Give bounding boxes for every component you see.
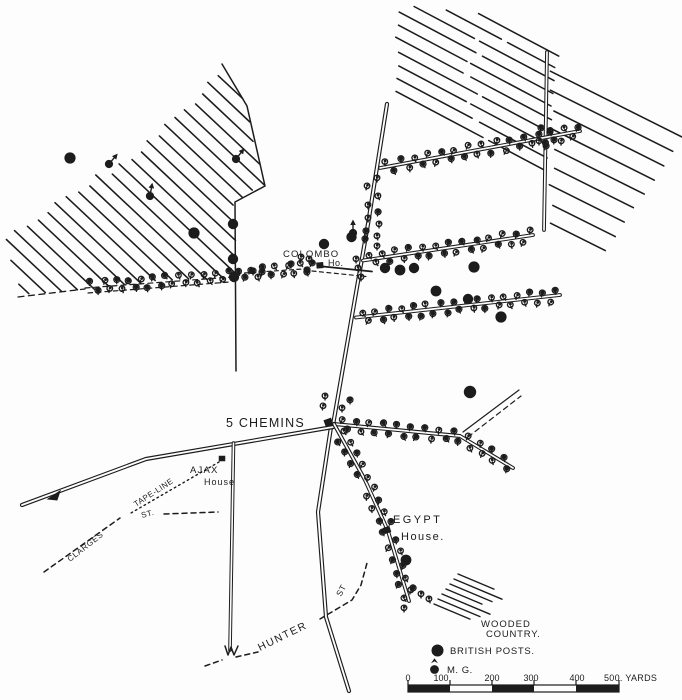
svg-text:300: 300 — [523, 673, 538, 683]
svg-text:200: 200 — [484, 673, 499, 683]
svg-text:M. G.: M. G. — [447, 665, 473, 676]
svg-text:EGYPT: EGYPT — [393, 514, 442, 526]
svg-text:House.: House. — [401, 531, 445, 543]
svg-text:100: 100 — [433, 673, 448, 683]
svg-text:AJAX: AJAX — [190, 465, 219, 476]
svg-text:Ho.: Ho. — [328, 258, 344, 268]
svg-text:5 CHEMINS: 5 CHEMINS — [226, 416, 305, 430]
svg-text:500. YARDS: 500. YARDS — [604, 673, 657, 683]
svg-text:400: 400 — [569, 673, 584, 683]
svg-text:COUNTRY.: COUNTRY. — [486, 629, 541, 640]
svg-text:BRITISH POSTS.: BRITISH POSTS. — [450, 646, 535, 657]
svg-text:House: House — [204, 477, 235, 487]
svg-text:0: 0 — [405, 673, 410, 683]
